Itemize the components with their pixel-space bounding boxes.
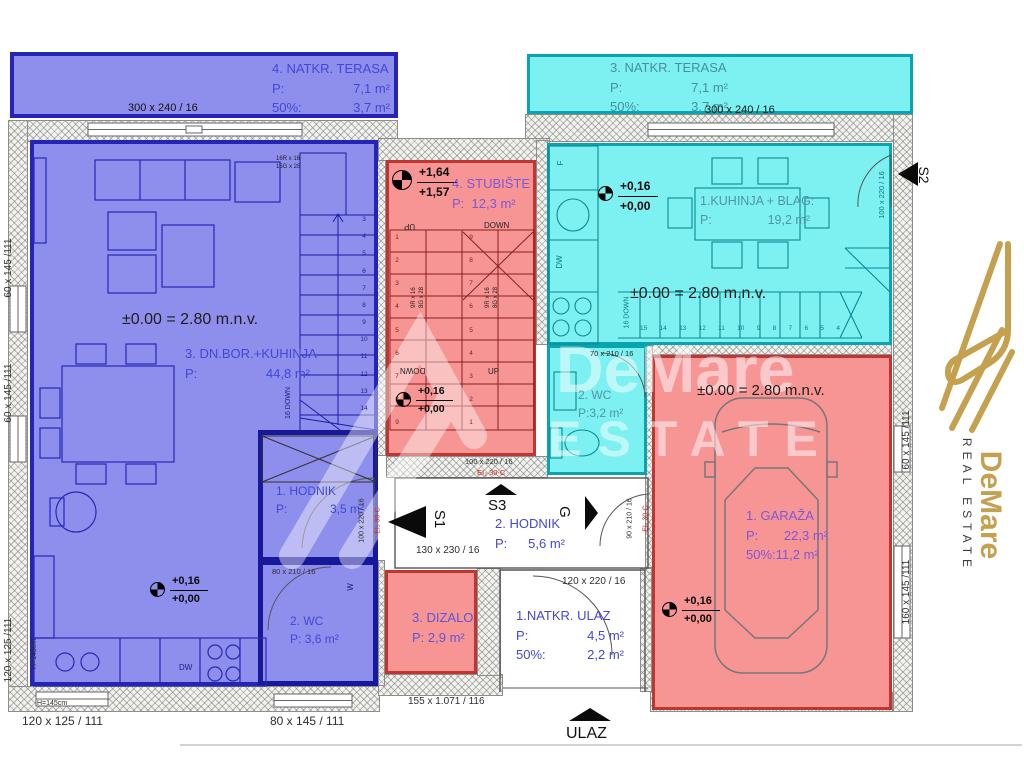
dizalo-p-label: P:	[412, 630, 424, 645]
dim-left-mid: 60 x 145 /111	[3, 363, 13, 423]
wc-cyan-label: 2. WC P:3,2 m²	[578, 386, 623, 422]
step-number: 7	[469, 280, 473, 287]
level-marker-icon	[396, 392, 411, 407]
wc-blue-p-value: 3,6 m²	[305, 632, 339, 646]
ulaz-p-label: P:	[516, 626, 528, 646]
g-arrow-icon	[585, 496, 598, 530]
level-marker-icon	[392, 170, 412, 190]
stairwell-down-top: DOWN	[484, 220, 509, 232]
wall-ulaz-garage	[640, 568, 652, 692]
s2-label: S2	[917, 163, 931, 187]
wc-blue-label: 2. WC P: 3,6 m²	[290, 612, 339, 648]
kitchen-level-marker: +0,16+0,00	[598, 178, 658, 215]
ulaz-door-dim: 120 x 220 / 16	[562, 574, 625, 589]
s3-arrow-icon	[485, 484, 517, 495]
step-number: 9	[362, 319, 366, 326]
kitchen-level: ±0.00 = 2.80 m.n.v.	[630, 282, 766, 306]
step-number: 11	[718, 325, 725, 332]
dim-sill-v: H=145cm	[30, 634, 38, 674]
step-number: 9	[757, 325, 761, 332]
garage-level: ±0.00 = 2.80 m.n.v.	[697, 380, 825, 403]
ulaz-room-name: 1.NATKR. ULAZ	[516, 606, 624, 626]
stairwell-name: 4. STUBIŠTE	[452, 174, 530, 194]
wc-cyan-door-dim: 70 x 210 / 16	[590, 348, 633, 359]
living-level: ±0.00 = 2.80 m.n.v.	[122, 308, 258, 332]
fridge-label: F	[555, 153, 565, 173]
stairwell-p-label: P:	[452, 196, 464, 211]
garage-p-value: 22,3 m²	[784, 526, 828, 546]
dim-bottom-left: 120 x 125 / 111	[22, 712, 103, 730]
step-number: 4	[395, 303, 399, 310]
kitchen-p-value: 19,2 m²	[768, 211, 810, 230]
dim-right-bottom: 160 x 145 /111	[901, 557, 911, 627]
garage-name: 1. GARAŽA	[746, 506, 828, 526]
step-number: 3	[395, 280, 399, 287]
garage-pct-value: 11,2 m²	[776, 547, 819, 562]
stairwell-spec-risers: 9R x 16	[411, 287, 419, 308]
garage-p-label: P:	[746, 526, 758, 546]
dim-sill: H=145cm	[37, 699, 67, 710]
kitchen-stair-down-label: 16 DOWN	[623, 292, 632, 334]
entrance-label: ULAZ	[566, 722, 607, 746]
living-stair-spec: 16R x 16 15G x 28	[276, 156, 300, 171]
wall-top-left	[8, 120, 398, 142]
g-label: G	[558, 503, 572, 521]
fire-rating-s1: EI₂ 30-C	[374, 493, 383, 549]
stairwell-up-top: UP	[404, 220, 415, 232]
stairwell-p-value: 12,3 m²	[472, 196, 516, 211]
stairwell-steps-right: 987654321	[466, 234, 476, 426]
fire-rating-s3: EI₂ 30-C	[477, 467, 505, 478]
terrace4-label: 4. NATKR. TERASA P:7,1 m² 50%:3,7 m²	[272, 59, 390, 118]
ulaz-room-label: 1.NATKR. ULAZ P:4,5 m² 50%:2,2 m²	[516, 606, 624, 665]
step-number: 5	[395, 327, 399, 334]
brand-logo-text: DeMare REAL ESTATE	[950, 430, 1006, 580]
floor-plan: 4. NATKR. TERASA P:7,1 m² 50%:3,7 m² 300…	[0, 0, 1024, 768]
stairwell-label: 4. STUBIŠTE P: 12,3 m²	[452, 174, 530, 213]
stairwell-spec-goings: 8G x 28	[493, 287, 501, 308]
step-number: 6	[804, 325, 808, 332]
stairwell-up-bottom: UP	[488, 366, 499, 378]
terrace4-p-label: P:	[272, 79, 284, 99]
kitchen-label: 1.KUHINJA + BLAG: P:19,2 m²	[700, 192, 810, 230]
stairwell-down-bottom: DOWN	[400, 364, 425, 376]
fire-rating-g: EI₂ 30-C	[642, 491, 651, 547]
step-number: 7	[395, 373, 399, 380]
living-spec-goings: 15G x 28	[276, 164, 300, 172]
stairwell-spec-right: 9R x 16 8G x 28	[485, 287, 500, 308]
wall-bottom-mid	[378, 674, 503, 696]
step-number: 8	[362, 302, 366, 309]
dim-bottom-mid: 155 x 1.071 / 116	[408, 694, 485, 709]
s1-door-dim-v: 100 x 220 / 16	[358, 491, 367, 551]
step-number: 8	[773, 325, 777, 332]
room-kitchen	[547, 143, 892, 345]
wc-blue-door-dim: 80 x 210 / 16	[272, 566, 315, 577]
step-number: 15	[640, 325, 647, 332]
s2-arrow-icon	[898, 162, 918, 186]
garage-label: 1. GARAŽA P:22,3 m² 50%:11,2 m²	[746, 506, 828, 565]
step-number: 6	[362, 268, 366, 275]
s1-label: S1	[433, 507, 447, 531]
dizalo-label: 3. DIZALO P: 2,9 m²	[412, 608, 473, 647]
step-number: 4	[362, 233, 366, 240]
dim-right-top: 60 x 145 /111	[901, 410, 911, 470]
step-number: 5	[362, 250, 366, 257]
garage-pct-label: 50%:	[746, 547, 776, 562]
level-marker-icon	[662, 602, 677, 617]
garage-lvl-lo: +0,00	[682, 611, 720, 627]
step-number: 5	[469, 327, 473, 334]
terrace3-name: 3. NATKR. TERASA	[610, 58, 728, 78]
terrace3-p-label: P:	[610, 78, 622, 98]
kitchen-p-label: P:	[700, 211, 712, 230]
wall-top-mid	[378, 138, 550, 162]
stairwell-spec-goings: 8G x 28	[419, 287, 427, 308]
step-number: 12	[699, 325, 706, 332]
step-number: 14	[360, 405, 367, 412]
living-step-numbers: 34567891011121314	[358, 216, 370, 412]
step-number: 3	[469, 373, 473, 380]
step-number: 2	[469, 396, 473, 403]
step-number: 1	[469, 419, 473, 426]
dim-left-top: 60 x 145 /111	[3, 238, 13, 298]
level-marker-icon	[150, 582, 165, 597]
wc-cyan-name: 2. WC	[578, 386, 623, 404]
ulaz-pct-label: 50%:	[516, 645, 546, 665]
step-number: 6	[395, 350, 399, 357]
brand-tagline: REAL ESTATE	[961, 430, 975, 580]
kitchen-step-numbers: 151413121110987654	[640, 322, 840, 334]
hodnik1-label: 1. HODNIK P:3,5 m²	[276, 482, 364, 518]
kitchen-window-dim: 100 x 220 / 16	[876, 165, 886, 225]
stairwell-level-marker: +1,64+1,57	[392, 164, 457, 201]
dizalo-p-value: 2,9 m²	[428, 630, 465, 645]
living-lvl-hi: +0,16	[170, 574, 208, 591]
hodnik2-label: 2. HODNIK P:5,6 m²	[495, 514, 587, 553]
washer-label: W	[345, 577, 355, 597]
terrace3-p-value: 7,1 m²	[691, 78, 728, 98]
terrace4-p-value: 7,1 m²	[353, 79, 390, 99]
stairwell-spec-risers: 9R x 16	[485, 287, 493, 308]
step-number: 7	[789, 325, 793, 332]
step-number: 12	[360, 371, 367, 378]
wc-blue-p-label: P:	[290, 632, 301, 646]
step-number: 6	[469, 303, 473, 310]
living-stair-down-label: 16 DOWN	[283, 373, 293, 433]
kitchen-name: 1.KUHINJA + BLAG:	[700, 192, 810, 211]
step-number: 9	[469, 234, 473, 241]
step-number: 7	[362, 285, 366, 292]
dim-left-bottom: 120 x 125 /111	[3, 615, 13, 685]
ulaz-p-value: 4,5 m²	[587, 626, 624, 646]
living-name: 3. DN.BOR.+KUHINJA	[185, 344, 310, 364]
entrance-arrow-icon	[569, 708, 611, 721]
terrace4-name: 4. NATKR. TERASA	[272, 59, 390, 79]
wall-wc-dizalo	[378, 560, 385, 686]
s1-arrow-icon	[388, 506, 426, 538]
step-number: 13	[360, 388, 367, 395]
living-level-marker: +0,16+0,00	[150, 574, 208, 608]
garage-lvl-hi: +0,16	[682, 594, 720, 611]
wc-blue-name: 2. WC	[290, 612, 339, 630]
level-marker-icon	[598, 186, 613, 201]
kitchen-lvl-lo: +0,00	[618, 197, 658, 215]
terrace4-dim: 300 x 240 / 16	[128, 100, 198, 117]
wall-dizalo-ulaz	[477, 568, 501, 676]
step-number: 5	[820, 325, 824, 332]
dizalo-name: 3. DIZALO	[412, 608, 473, 628]
hodnik2-p-label: P:	[495, 534, 507, 554]
stairwell-level-marker-2: +0,16+0,00	[396, 384, 453, 416]
step-number: 13	[679, 325, 686, 332]
stairwell-lvl2-hi: +0,16	[416, 384, 453, 401]
terrace4-pct-value: 3,7 m²	[353, 98, 390, 118]
step-number: 10	[360, 336, 367, 343]
step-number: 4	[836, 325, 840, 332]
hodnik1-name: 1. HODNIK	[276, 482, 364, 500]
step-number: 8	[469, 257, 473, 264]
living-lvl-lo: +0,00	[170, 591, 208, 607]
kitchen-lvl-hi: +0,16	[618, 178, 658, 197]
step-number: 2	[395, 257, 399, 264]
brand-name: DeMare	[975, 430, 1007, 580]
garage-level-marker: +0,16+0,00	[662, 594, 720, 628]
step-number: 10	[737, 325, 744, 332]
living-p-label: P:	[185, 364, 197, 384]
s3-door-dim: 100 x 220 / 16	[465, 456, 513, 467]
wc-cyan-p-label: P:	[578, 406, 589, 420]
terrace3-pct-label: 50%:	[610, 97, 640, 117]
wc-cyan-p-value: 3,2 m²	[589, 406, 623, 420]
step-number: 9	[395, 419, 399, 426]
hodnik2-p-value: 5,6 m²	[528, 534, 565, 554]
living-dw-label: DW	[179, 662, 192, 674]
terrace4-pct-label: 50%:	[272, 98, 302, 118]
stairwell-lvl2-lo: +0,00	[416, 401, 453, 417]
step-number: 1	[395, 234, 399, 241]
hodnik1-p-label: P:	[276, 500, 287, 518]
step-number: 14	[660, 325, 667, 332]
ulaz-pct-value: 2,2 m²	[587, 645, 624, 665]
dishwasher-label: DW	[554, 249, 564, 275]
g-door-dim-v: 90 x 210 / 16	[626, 490, 635, 548]
terrace3-dim: 300 x 240 / 16	[705, 102, 775, 119]
stairwell-spec-left: 9R x 16 8G x 28	[411, 287, 426, 308]
s1-door-dim: 130 x 230 / 16	[416, 543, 479, 558]
dim-bottom-center: 80 x 145 / 111	[270, 712, 344, 730]
step-number: 3	[362, 216, 366, 223]
step-number: 11	[361, 353, 368, 360]
demare-monogram-icon	[942, 244, 1012, 430]
living-spec-risers: 16R x 16	[276, 156, 300, 164]
step-number: 4	[469, 350, 473, 357]
